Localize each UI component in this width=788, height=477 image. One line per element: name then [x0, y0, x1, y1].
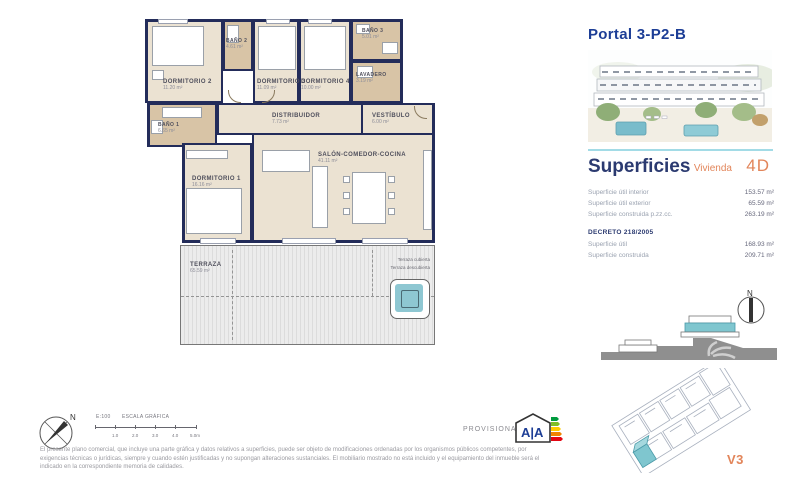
room-label: DORMITORIO 311.09 m² — [257, 79, 306, 91]
room-label: DISTRIBUIDOR7.73 m² — [272, 113, 320, 125]
bed — [152, 26, 204, 66]
north-label: N — [747, 289, 753, 298]
page-title: Portal 3-P2-B — [588, 26, 686, 43]
chair — [343, 176, 350, 183]
section-diagram: N — [593, 288, 777, 372]
bed — [304, 26, 346, 70]
section-divider — [588, 149, 773, 151]
room-label: VESTÍBULO6.00 m² — [372, 113, 410, 125]
room-label: SALÓN-COMEDOR-COCINA41.11 m² — [318, 152, 406, 164]
chair — [343, 192, 350, 199]
chair — [388, 176, 395, 183]
window — [282, 238, 336, 244]
north-label: N — [70, 413, 76, 422]
window — [158, 19, 188, 24]
chair — [343, 208, 350, 215]
scale-tick: 4.0 — [172, 433, 178, 438]
plan-sheet: Terraza cubierta Terraza descubierta DOR… — [0, 0, 788, 477]
superficies-header: Superficies Vivienda 4D — [588, 156, 778, 178]
surface-row: Superficie útil 168.93 m² — [588, 241, 774, 248]
door-arc — [228, 90, 241, 103]
pool-rim — [401, 290, 419, 308]
room-label: BAÑO 35.01 m² — [362, 28, 383, 40]
bed — [258, 26, 296, 70]
bath-fixture — [382, 42, 398, 54]
decreto-heading: DECRETO 218/2005 — [588, 229, 653, 236]
room-label: LAVADERO3.19 m² — [356, 72, 387, 84]
energy-rating-icon: A|A — [512, 410, 564, 446]
scale-tick: 5.0m — [190, 433, 200, 438]
scale-bar — [95, 427, 197, 432]
scale-title: ESCALA GRÁFICA — [122, 414, 169, 420]
scale-tick: 1.0 — [112, 433, 118, 438]
surface-row: Superficie útil interior 153.57 m² — [588, 189, 774, 196]
surface-row: Superficie útil exterior 65.59 m² — [588, 200, 774, 207]
window — [362, 238, 408, 244]
sink-counter — [162, 107, 202, 118]
kitchen-island — [312, 166, 328, 228]
energy-letters: A|A — [521, 425, 544, 440]
terrace-guide — [232, 250, 233, 340]
building-illustration — [588, 50, 772, 142]
room-label: DORMITORIO 211.20 m² — [163, 79, 212, 91]
surface-row: Superficie construida p.zz.cc. 263.19 m² — [588, 211, 774, 218]
scale-code: E:100 — [96, 414, 111, 420]
room-label: DORMITORIO 116.16 m² — [192, 176, 241, 188]
dining-table — [352, 172, 386, 224]
bed — [186, 188, 242, 234]
terrace-note-1: Terraza cubierta — [330, 256, 430, 263]
site-plan — [598, 368, 773, 473]
window — [266, 19, 290, 24]
sofa — [262, 150, 310, 172]
wardrobe — [186, 150, 228, 159]
room-label: DORMITORIO 410.00 m² — [301, 79, 350, 91]
room-label: BAÑO 24.61 m² — [226, 38, 247, 50]
scale-tick: 2.0 — [132, 433, 138, 438]
chair — [388, 208, 395, 215]
scale-tick: 3.0 — [152, 433, 158, 438]
vivienda-value: 4D — [746, 156, 770, 176]
surface-row: Superficie construida 209.71 m² — [588, 252, 774, 259]
superficies-heading: Superficies — [588, 156, 690, 177]
terrace-note-2: Terraza descubierta — [330, 264, 430, 271]
chair — [388, 192, 395, 199]
window — [200, 238, 236, 244]
vivienda-label: Vivienda — [694, 163, 732, 174]
version-tag: V3 — [727, 452, 744, 467]
plunge-pool — [390, 279, 430, 319]
kitchen-counter — [423, 150, 432, 230]
legal-disclaimer: El presente plano comercial, que incluye… — [40, 446, 548, 472]
room-label: BAÑO 16.65 m² — [158, 122, 179, 134]
window — [308, 19, 332, 24]
room-label: TERRAZA65.59 m² — [190, 262, 221, 274]
